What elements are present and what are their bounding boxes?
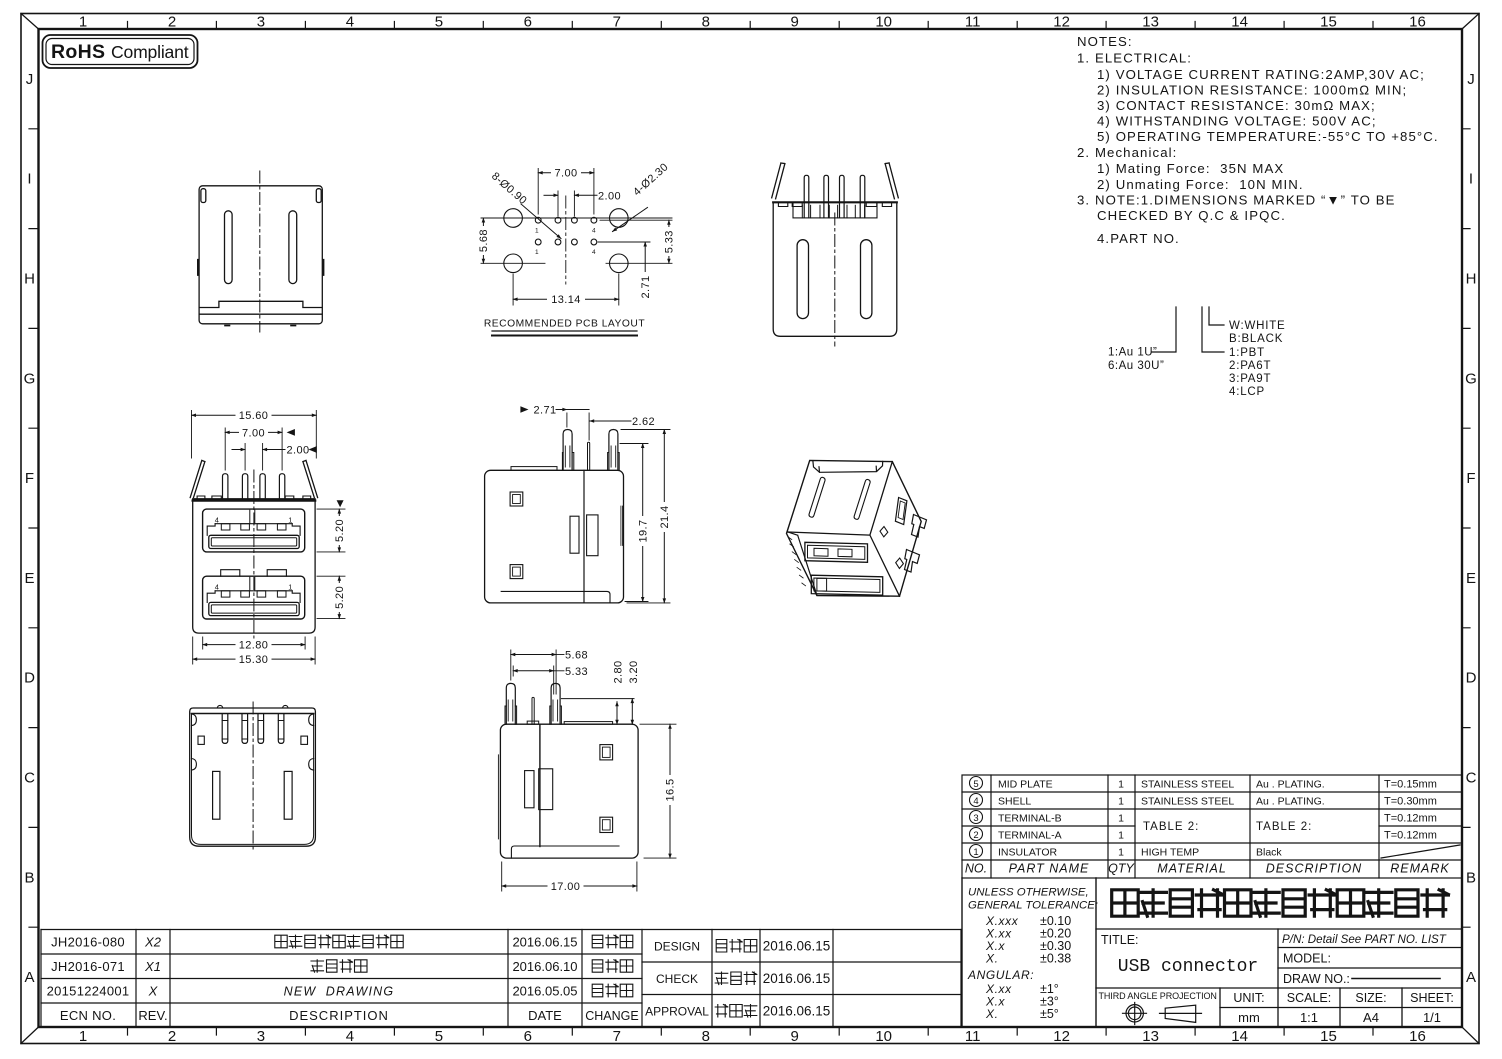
- svg-text:INSULATOR: INSULATOR: [998, 846, 1058, 858]
- svg-text:7: 7: [613, 1028, 621, 1045]
- svg-text:1: 1: [288, 516, 293, 525]
- svg-text:15: 15: [1320, 1028, 1337, 1045]
- svg-text:2016.06.15: 2016.06.15: [763, 1004, 831, 1019]
- svg-text:6: 6: [524, 1028, 532, 1045]
- svg-text:D: D: [1466, 670, 1477, 687]
- svg-text:15.60: 15.60: [239, 410, 269, 422]
- svg-text:ECN NO.: ECN NO.: [60, 1008, 116, 1023]
- svg-text:MATERIAL: MATERIAL: [1157, 862, 1227, 876]
- svg-text:2.71: 2.71: [533, 404, 556, 416]
- svg-text:5) OPERATING TEMPERATURE:-55°C: 5) OPERATING TEMPERATURE:-55°C TO +85°C.: [1097, 129, 1439, 144]
- svg-text:J: J: [1467, 71, 1475, 88]
- svg-text:±0.38: ±0.38: [1040, 952, 1071, 966]
- svg-text:A: A: [1466, 969, 1476, 986]
- svg-text:1: 1: [1118, 812, 1124, 824]
- svg-text:X.: X.: [985, 1007, 999, 1021]
- svg-text:11: 11: [965, 1028, 981, 1045]
- svg-text:2. Mechanical:: 2. Mechanical:: [1077, 145, 1177, 160]
- svg-text:6:Au 30U”: 6:Au 30U”: [1108, 360, 1164, 372]
- svg-text:1: 1: [1118, 846, 1124, 858]
- svg-text:X1: X1: [144, 959, 161, 974]
- svg-text:2.71: 2.71: [640, 275, 652, 298]
- svg-text:16: 16: [1409, 14, 1426, 31]
- svg-text:SHEET:: SHEET:: [1410, 991, 1454, 1005]
- svg-text:Au . PLATING.: Au . PLATING.: [1256, 795, 1325, 807]
- svg-text:P/N: Detail See PART NO. LIST: P/N: Detail See PART NO. LIST: [1282, 933, 1447, 946]
- svg-text:A4: A4: [1363, 1010, 1379, 1025]
- svg-text:2) Unmating Force: 10N MIN.: 2) Unmating Force: 10N MIN.: [1097, 177, 1304, 192]
- svg-text:REV.: REV.: [138, 1008, 167, 1023]
- svg-text:2.80: 2.80: [613, 660, 625, 683]
- svg-text:5: 5: [973, 779, 978, 790]
- svg-text:11: 11: [965, 14, 981, 31]
- svg-text:2016.06.10: 2016.06.10: [512, 959, 577, 974]
- svg-text:STAINLESS STEEL: STAINLESS STEEL: [1141, 795, 1234, 807]
- svg-text:8: 8: [702, 14, 710, 31]
- svg-text:5.68: 5.68: [478, 229, 490, 252]
- svg-text:3) CONTACT RESISTANCE: 30mΩ MA: 3) CONTACT RESISTANCE: 30mΩ MAX;: [1097, 98, 1376, 113]
- svg-text:mm: mm: [1238, 1010, 1260, 1025]
- svg-text:CHECKED BY Q.C & IPQC.: CHECKED BY Q.C & IPQC.: [1097, 208, 1286, 223]
- svg-text:2: 2: [168, 14, 176, 31]
- svg-text:7.00: 7.00: [242, 427, 265, 439]
- svg-text:TITLE:: TITLE:: [1101, 933, 1139, 947]
- svg-text:15.30: 15.30: [239, 654, 269, 666]
- svg-text:2016.06.15: 2016.06.15: [763, 939, 831, 954]
- svg-text:2.00: 2.00: [598, 191, 621, 203]
- svg-text:DESCRIPTION: DESCRIPTION: [1266, 862, 1362, 876]
- svg-text:4) WITHSTANDING VOLTAGE: 500V: 4) WITHSTANDING VOLTAGE: 500V AC;: [1097, 114, 1377, 129]
- svg-text:6: 6: [524, 14, 532, 31]
- svg-text:4: 4: [592, 228, 596, 235]
- svg-text:5.20: 5.20: [334, 586, 346, 609]
- svg-text:1: 1: [535, 228, 539, 235]
- svg-text:Black: Black: [1256, 846, 1282, 858]
- svg-text:TABLE 2:: TABLE 2:: [1143, 821, 1199, 833]
- svg-text:MID PLATE: MID PLATE: [998, 778, 1053, 790]
- svg-text:E: E: [24, 570, 34, 587]
- svg-text:1:1: 1:1: [1300, 1010, 1318, 1025]
- svg-text:14: 14: [1231, 1028, 1248, 1045]
- svg-text:10: 10: [875, 1028, 892, 1045]
- svg-text:TERMINAL-A: TERMINAL-A: [998, 829, 1062, 841]
- svg-text:USB connector: USB connector: [1118, 957, 1258, 977]
- svg-text:5.68: 5.68: [565, 650, 588, 662]
- svg-text:4: 4: [346, 14, 354, 31]
- svg-text:3.20: 3.20: [628, 660, 640, 683]
- svg-text:Au . PLATING.: Au . PLATING.: [1256, 778, 1325, 790]
- svg-text:RECOMMENDED PCB LAYOUT: RECOMMENDED PCB LAYOUT: [484, 319, 645, 330]
- svg-text:1: 1: [535, 249, 539, 256]
- svg-text:TABLE 2:: TABLE 2:: [1256, 821, 1312, 833]
- svg-text:H: H: [24, 271, 35, 288]
- svg-text:7: 7: [613, 14, 621, 31]
- svg-text:9: 9: [791, 1028, 799, 1045]
- svg-text:G: G: [1465, 370, 1477, 387]
- svg-text:JH2016-071: JH2016-071: [51, 959, 125, 974]
- svg-text:B:BLACK: B:BLACK: [1229, 333, 1283, 345]
- svg-text:X: X: [148, 984, 159, 999]
- svg-text:5.33: 5.33: [565, 666, 588, 678]
- svg-text:QTY: QTY: [1108, 862, 1135, 876]
- svg-text:2.62: 2.62: [632, 416, 655, 428]
- svg-text:DESCRIPTION: DESCRIPTION: [289, 1008, 389, 1023]
- svg-text:F: F: [1466, 470, 1475, 487]
- svg-text:MODEL:: MODEL:: [1283, 952, 1331, 966]
- svg-text:16.5: 16.5: [665, 778, 677, 801]
- svg-text:TERMINAL-B: TERMINAL-B: [998, 812, 1062, 824]
- svg-text:1: 1: [79, 14, 87, 31]
- svg-text:5.33: 5.33: [664, 230, 676, 253]
- svg-text:J: J: [26, 71, 34, 88]
- svg-text:4: 4: [346, 1028, 354, 1045]
- svg-text:17.00: 17.00: [551, 881, 581, 893]
- svg-text:T=0.12mm: T=0.12mm: [1384, 813, 1437, 825]
- svg-text:2016.06.15: 2016.06.15: [763, 971, 831, 986]
- svg-text:5: 5: [435, 1028, 443, 1045]
- svg-text:SCALE:: SCALE:: [1287, 991, 1331, 1005]
- svg-text:2: 2: [973, 830, 978, 841]
- svg-text:3: 3: [257, 1028, 265, 1045]
- svg-text:F: F: [25, 470, 34, 487]
- svg-text:PART NAME: PART NAME: [1009, 862, 1090, 876]
- svg-text:10: 10: [875, 14, 892, 31]
- svg-text:2:PA6T: 2:PA6T: [1229, 360, 1271, 372]
- svg-text:E: E: [1466, 570, 1476, 587]
- svg-text:STAINLESS STEEL: STAINLESS STEEL: [1141, 778, 1234, 790]
- svg-text:SHELL: SHELL: [998, 795, 1031, 807]
- svg-text:16: 16: [1409, 1028, 1426, 1045]
- svg-text:THIRD ANGLE PROJECTION: THIRD ANGLE PROJECTION: [1099, 991, 1217, 1001]
- svg-text:X.: X.: [985, 952, 999, 966]
- svg-text:DESIGN: DESIGN: [654, 939, 700, 953]
- svg-text:20151224001: 20151224001: [47, 984, 130, 999]
- svg-text:I: I: [1469, 171, 1473, 188]
- svg-text:13: 13: [1142, 14, 1159, 31]
- svg-text:2: 2: [168, 1028, 176, 1045]
- svg-text:T=0.12mm: T=0.12mm: [1384, 830, 1437, 842]
- svg-text:21.4: 21.4: [659, 505, 671, 528]
- svg-text:±5°: ±5°: [1040, 1007, 1059, 1021]
- svg-text:NOTES:: NOTES:: [1077, 34, 1133, 49]
- svg-text:14: 14: [1231, 14, 1248, 31]
- svg-text:APPROVAL: APPROVAL: [645, 1004, 709, 1018]
- svg-text:G: G: [24, 370, 36, 387]
- svg-text:CHECK: CHECK: [656, 972, 698, 986]
- svg-text:12: 12: [1053, 14, 1070, 31]
- svg-text:7.00: 7.00: [554, 168, 577, 180]
- svg-text:2) INSULATION RESISTANCE: 1000: 2) INSULATION RESISTANCE: 1000mΩ MIN;: [1097, 83, 1407, 98]
- svg-text:4: 4: [592, 249, 596, 256]
- svg-text:CHANGE: CHANGE: [585, 1009, 638, 1023]
- svg-text:19.7: 19.7: [637, 519, 649, 542]
- svg-text:NO.: NO.: [965, 862, 987, 876]
- svg-text:1: 1: [288, 583, 293, 592]
- svg-text:4: 4: [215, 516, 220, 525]
- svg-text:1: 1: [1118, 829, 1124, 841]
- svg-text:D: D: [24, 670, 35, 687]
- svg-text:B: B: [1466, 869, 1476, 886]
- svg-text:DATE: DATE: [528, 1008, 562, 1023]
- svg-text:W:WHITE: W:WHITE: [1229, 320, 1286, 332]
- svg-text:1: 1: [973, 847, 978, 858]
- svg-text:3. NOTE:1.DIMENSIONS MARKED “▼: 3. NOTE:1.DIMENSIONS MARKED “▼” TO BE: [1077, 193, 1396, 208]
- svg-text:I: I: [27, 171, 31, 188]
- svg-text:HIGH TEMP: HIGH TEMP: [1141, 846, 1199, 858]
- svg-text:1:Au 1U”: 1:Au 1U”: [1108, 347, 1157, 359]
- svg-text:T=0.30mm: T=0.30mm: [1384, 796, 1437, 808]
- svg-text:C: C: [1466, 770, 1477, 787]
- svg-text:NEW DRAWING: NEW DRAWING: [284, 985, 395, 999]
- svg-text:8: 8: [702, 1028, 710, 1045]
- svg-text:1:PBT: 1:PBT: [1229, 347, 1265, 359]
- svg-text:B: B: [24, 869, 34, 886]
- svg-text:5.20: 5.20: [334, 519, 346, 542]
- svg-text:SIZE:: SIZE:: [1355, 991, 1386, 1005]
- svg-text:1: 1: [1118, 778, 1124, 790]
- svg-text:2016.05.05: 2016.05.05: [512, 984, 577, 999]
- svg-text:3: 3: [973, 813, 978, 824]
- svg-text:13.14: 13.14: [551, 294, 581, 306]
- svg-text:REMARK: REMARK: [1390, 862, 1449, 876]
- svg-text:4: 4: [215, 583, 220, 592]
- svg-text:1: 1: [79, 1028, 87, 1045]
- svg-text:3:PA9T: 3:PA9T: [1229, 373, 1271, 385]
- svg-text:1: 1: [1118, 795, 1124, 807]
- svg-text:3: 3: [257, 14, 265, 31]
- svg-text:Compliant: Compliant: [111, 42, 189, 62]
- svg-text:12: 12: [1053, 1028, 1070, 1045]
- svg-text:1) Mating Force: 35N MAX: 1) Mating Force: 35N MAX: [1097, 161, 1284, 176]
- svg-text:GENERAL TOLERANCE:: GENERAL TOLERANCE:: [968, 900, 1098, 912]
- svg-text:RoHS: RoHS: [51, 41, 105, 63]
- svg-text:T=0.15mm: T=0.15mm: [1384, 779, 1437, 791]
- svg-text:9: 9: [791, 14, 799, 31]
- svg-text:2.00: 2.00: [287, 444, 310, 456]
- svg-text:2016.06.15: 2016.06.15: [512, 935, 577, 950]
- svg-text:1) VOLTAGE CURRENT RATING:2AMP: 1) VOLTAGE CURRENT RATING:2AMP,30V AC;: [1097, 67, 1425, 82]
- svg-text:UNIT:: UNIT:: [1233, 991, 1264, 1005]
- svg-text:JH2016-080: JH2016-080: [51, 935, 125, 950]
- svg-text:DRAW NO.:: DRAW NO.:: [1283, 972, 1350, 986]
- svg-text:4: 4: [973, 796, 978, 807]
- svg-text:A: A: [24, 969, 34, 986]
- svg-text:H: H: [1466, 271, 1477, 288]
- svg-text:5: 5: [435, 14, 443, 31]
- svg-text:C: C: [24, 770, 35, 787]
- svg-text:X2: X2: [144, 935, 162, 950]
- svg-text:ANGULAR:: ANGULAR:: [967, 968, 1034, 982]
- svg-text:4.PART NO.: 4.PART NO.: [1097, 231, 1180, 246]
- svg-text:UNLESS OTHERWISE,: UNLESS OTHERWISE,: [968, 887, 1089, 899]
- svg-text:15: 15: [1320, 14, 1337, 31]
- svg-text:12.80: 12.80: [239, 640, 269, 652]
- svg-text:1/1: 1/1: [1423, 1010, 1441, 1025]
- svg-text:4:LCP: 4:LCP: [1229, 386, 1265, 398]
- svg-text:1. ELECTRICAL:: 1. ELECTRICAL:: [1077, 51, 1192, 66]
- svg-text:13: 13: [1142, 1028, 1159, 1045]
